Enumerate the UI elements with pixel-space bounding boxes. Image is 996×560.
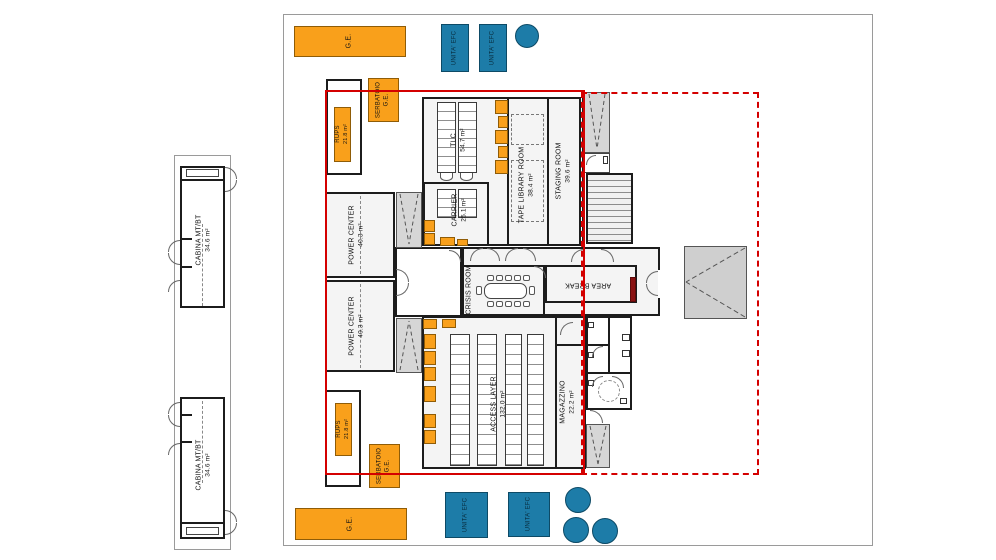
chair [505,275,512,281]
door-arc [168,443,180,455]
room-name: CABINA MT/BT [196,214,205,265]
chair [523,275,530,281]
wall-stub [180,238,192,240]
wall-stub [180,441,192,443]
room-label-tlc: TLC 54.7 m² [451,128,468,151]
conference-table [484,283,527,299]
bathroom-wall [586,344,610,346]
room-label-tape-library: TAPE LIBRARY ROOM 38.4 m² [519,147,536,224]
access-rack-row [450,334,470,466]
pdu-box [442,319,456,328]
equipment-name: UNITA' EFC [489,31,497,65]
pdu-box [424,220,435,232]
pdu-box [424,367,436,381]
wall-stub [180,266,192,268]
pdu-box [495,100,508,114]
access-rack-row [505,334,522,466]
chair [529,286,535,295]
wall-staging-left [547,97,549,246]
room-name: AREA BREAK [565,280,611,289]
cooling-unit [440,173,453,181]
room-label-staging: STAGING ROOM 39.6 m² [556,142,573,199]
equipment-name: RUPS [336,420,344,437]
generator-label-bottom: G.E. [347,517,356,532]
chair [514,301,521,307]
tape-equipment-footprint [511,114,544,145]
room-area: 40.3 m² [357,314,365,337]
room-area: 25.1 m² [460,198,468,221]
room-area: 38.4 m² [527,173,535,196]
room-area: 40.3 m² [357,223,365,246]
room-label-magazzino: MAGAZZINO 22.2 m² [560,380,577,423]
pdu-box [457,239,468,246]
fixture [603,156,608,164]
stairwell [586,173,633,244]
chiller-unit-label: UNITA' EFC [462,498,470,532]
cabina-louver [186,169,219,177]
room-name: TAPE LIBRARY ROOM [519,147,528,224]
equipment-name: G.E. [347,517,356,532]
room-label-access-layer: ACCESS LAYER 132.0 m² [491,376,508,432]
room-name: TLC [451,133,460,147]
chair [487,275,494,281]
cooling-unit [460,173,473,181]
pdu-box [440,237,455,246]
room-label-crisis: CRISIS ROOM [466,265,475,314]
chair [514,275,521,281]
pdu-box [495,160,508,174]
equipment-name2: G.E. [384,460,392,473]
chiller-unit-label: UNITA' EFC [489,31,497,65]
sink-fixture [622,350,630,357]
equipment-name2: G.E. [383,94,391,107]
door-arc [168,280,180,292]
room-name: CARRIER [452,194,461,227]
equipment-name: UNITA' EFC [451,31,459,65]
door-arc [168,415,180,427]
room-name: POWER CENTER [349,296,358,356]
pdu-box [498,116,508,128]
equipment-area: 21.8 m² [342,124,349,144]
room-label-power-center-2: POWER CENTER 40.3 m² [349,296,366,356]
chair [476,286,482,295]
pdu-box [424,351,436,365]
generator-label-top: G.E. [346,34,355,49]
room-name: MAGAZZINO [560,380,569,423]
room-name: POWER CENTER [349,205,358,265]
chiller-unit-label: UNITA' EFC [451,31,459,65]
room-name: ACCESS LAYER [491,376,500,432]
pdu-box [498,146,508,158]
equipment-name: G.E. [346,34,355,49]
pdu-box [423,319,437,329]
room-area: 39.6 m² [564,159,572,182]
pdu-box [424,334,436,349]
room-label-power-center-1: POWER CENTER 40.3 m² [349,205,366,265]
vending-unit [630,277,636,302]
wc-fixture [620,398,627,404]
sink-fixture [622,334,630,341]
tank-circle [565,487,591,513]
door-arc [225,523,237,535]
chair [496,275,503,281]
door-arc [225,510,237,522]
tank-circle [515,24,539,48]
ramp-hatch-top [584,92,610,153]
chair [496,301,503,307]
room-area: 54.7 m² [459,128,467,151]
chair [523,301,530,307]
room-label-area-break: AREA BREAK [565,280,611,289]
wc-fixture [588,322,594,328]
equipment-area: 21.8 m² [343,419,350,439]
room-area: 34.6 m² [204,453,212,476]
bathroom-wall [586,372,632,374]
louver-hatch-2 [396,318,422,373]
floor-plan-canvas: CABINA MT/BT 34.6 m² CABINA MT/BT 34.6 m… [0,0,996,560]
cabina-louver [186,527,219,535]
room-label-cabina-bottom: CABINA MT/BT 34.6 m² [196,439,213,490]
equipment-name: UNITA' EFC [462,498,470,532]
pdu-box [424,386,436,402]
room-name: CABINA MT/BT [196,439,205,490]
louver-hatch-1 [396,192,422,248]
door-arc [225,180,237,192]
chair [505,301,512,307]
equipment-name: SERBATOIO [376,82,384,118]
equipment-name: UNITA' EFC [525,497,533,531]
door-gap [658,270,661,298]
bathroom-wall [608,318,610,374]
access-rack-row [527,334,544,466]
door-arc [168,402,180,414]
room-label-carrier: CARRIER 25.1 m² [452,194,469,227]
fuel-tank-label-bottom: SERBATOIO G.E. [377,448,392,484]
tank-circle [563,517,589,543]
door-arc [168,240,180,252]
wall-stub [180,414,192,416]
door-arc [225,167,237,179]
wall-magazzino-left [555,318,557,467]
chiller-unit-label: UNITA' EFC [525,497,533,531]
room-name: STAGING ROOM [556,142,565,199]
wall-magazzino-ante [555,344,586,346]
cabina-partition [180,522,225,524]
chair [487,301,494,307]
door-arc [168,253,180,265]
pdu-box [424,233,435,245]
room-area: 34.6 m² [204,228,212,251]
cabina-partition [180,179,225,181]
tank-circle [592,518,618,544]
room-name: CRISIS ROOM [466,265,475,314]
fuel-tank-label-top: SERBATOIO G.E. [376,82,391,118]
pdu-box [424,430,436,444]
room-area: 22.2 m² [568,390,576,413]
pdu-box [424,414,436,428]
room-area: 132.0 m² [499,390,507,417]
equipment-name: SERBATOIO [377,448,385,484]
ramp-hatch-bottom [586,424,610,468]
rups-label-top: RUPS 21.8 m² [335,124,349,144]
room-label-cabina-top: CABINA MT/BT 34.6 m² [196,214,213,265]
pdu-box [495,130,508,144]
loading-platform [684,246,747,319]
equipment-name: RUPS [335,125,343,142]
rups-label-bottom: RUPS 21.8 m² [336,419,350,439]
